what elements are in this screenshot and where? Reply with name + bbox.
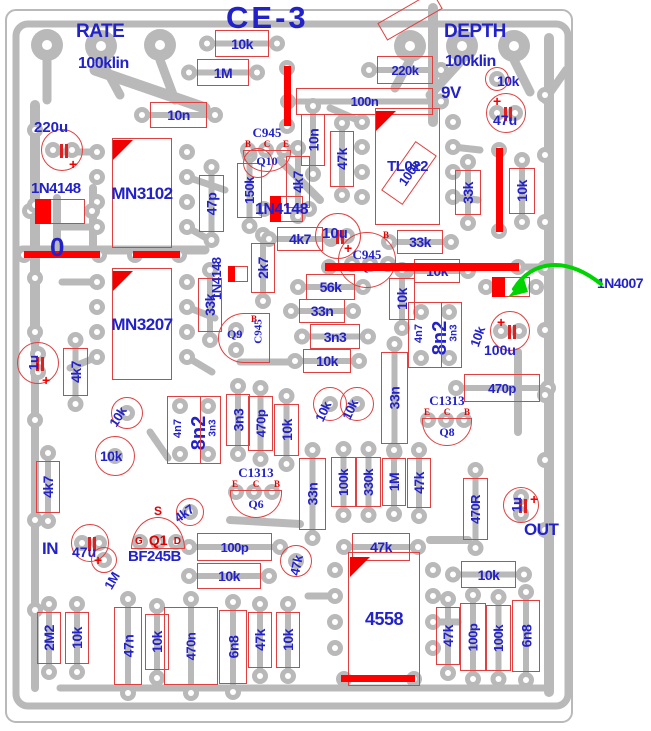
- pcb-layout: CE-3 10k1M220k100n10n10n47k4k7150k47p33k…: [0, 0, 651, 731]
- annotation-arrow: [0, 0, 651, 731]
